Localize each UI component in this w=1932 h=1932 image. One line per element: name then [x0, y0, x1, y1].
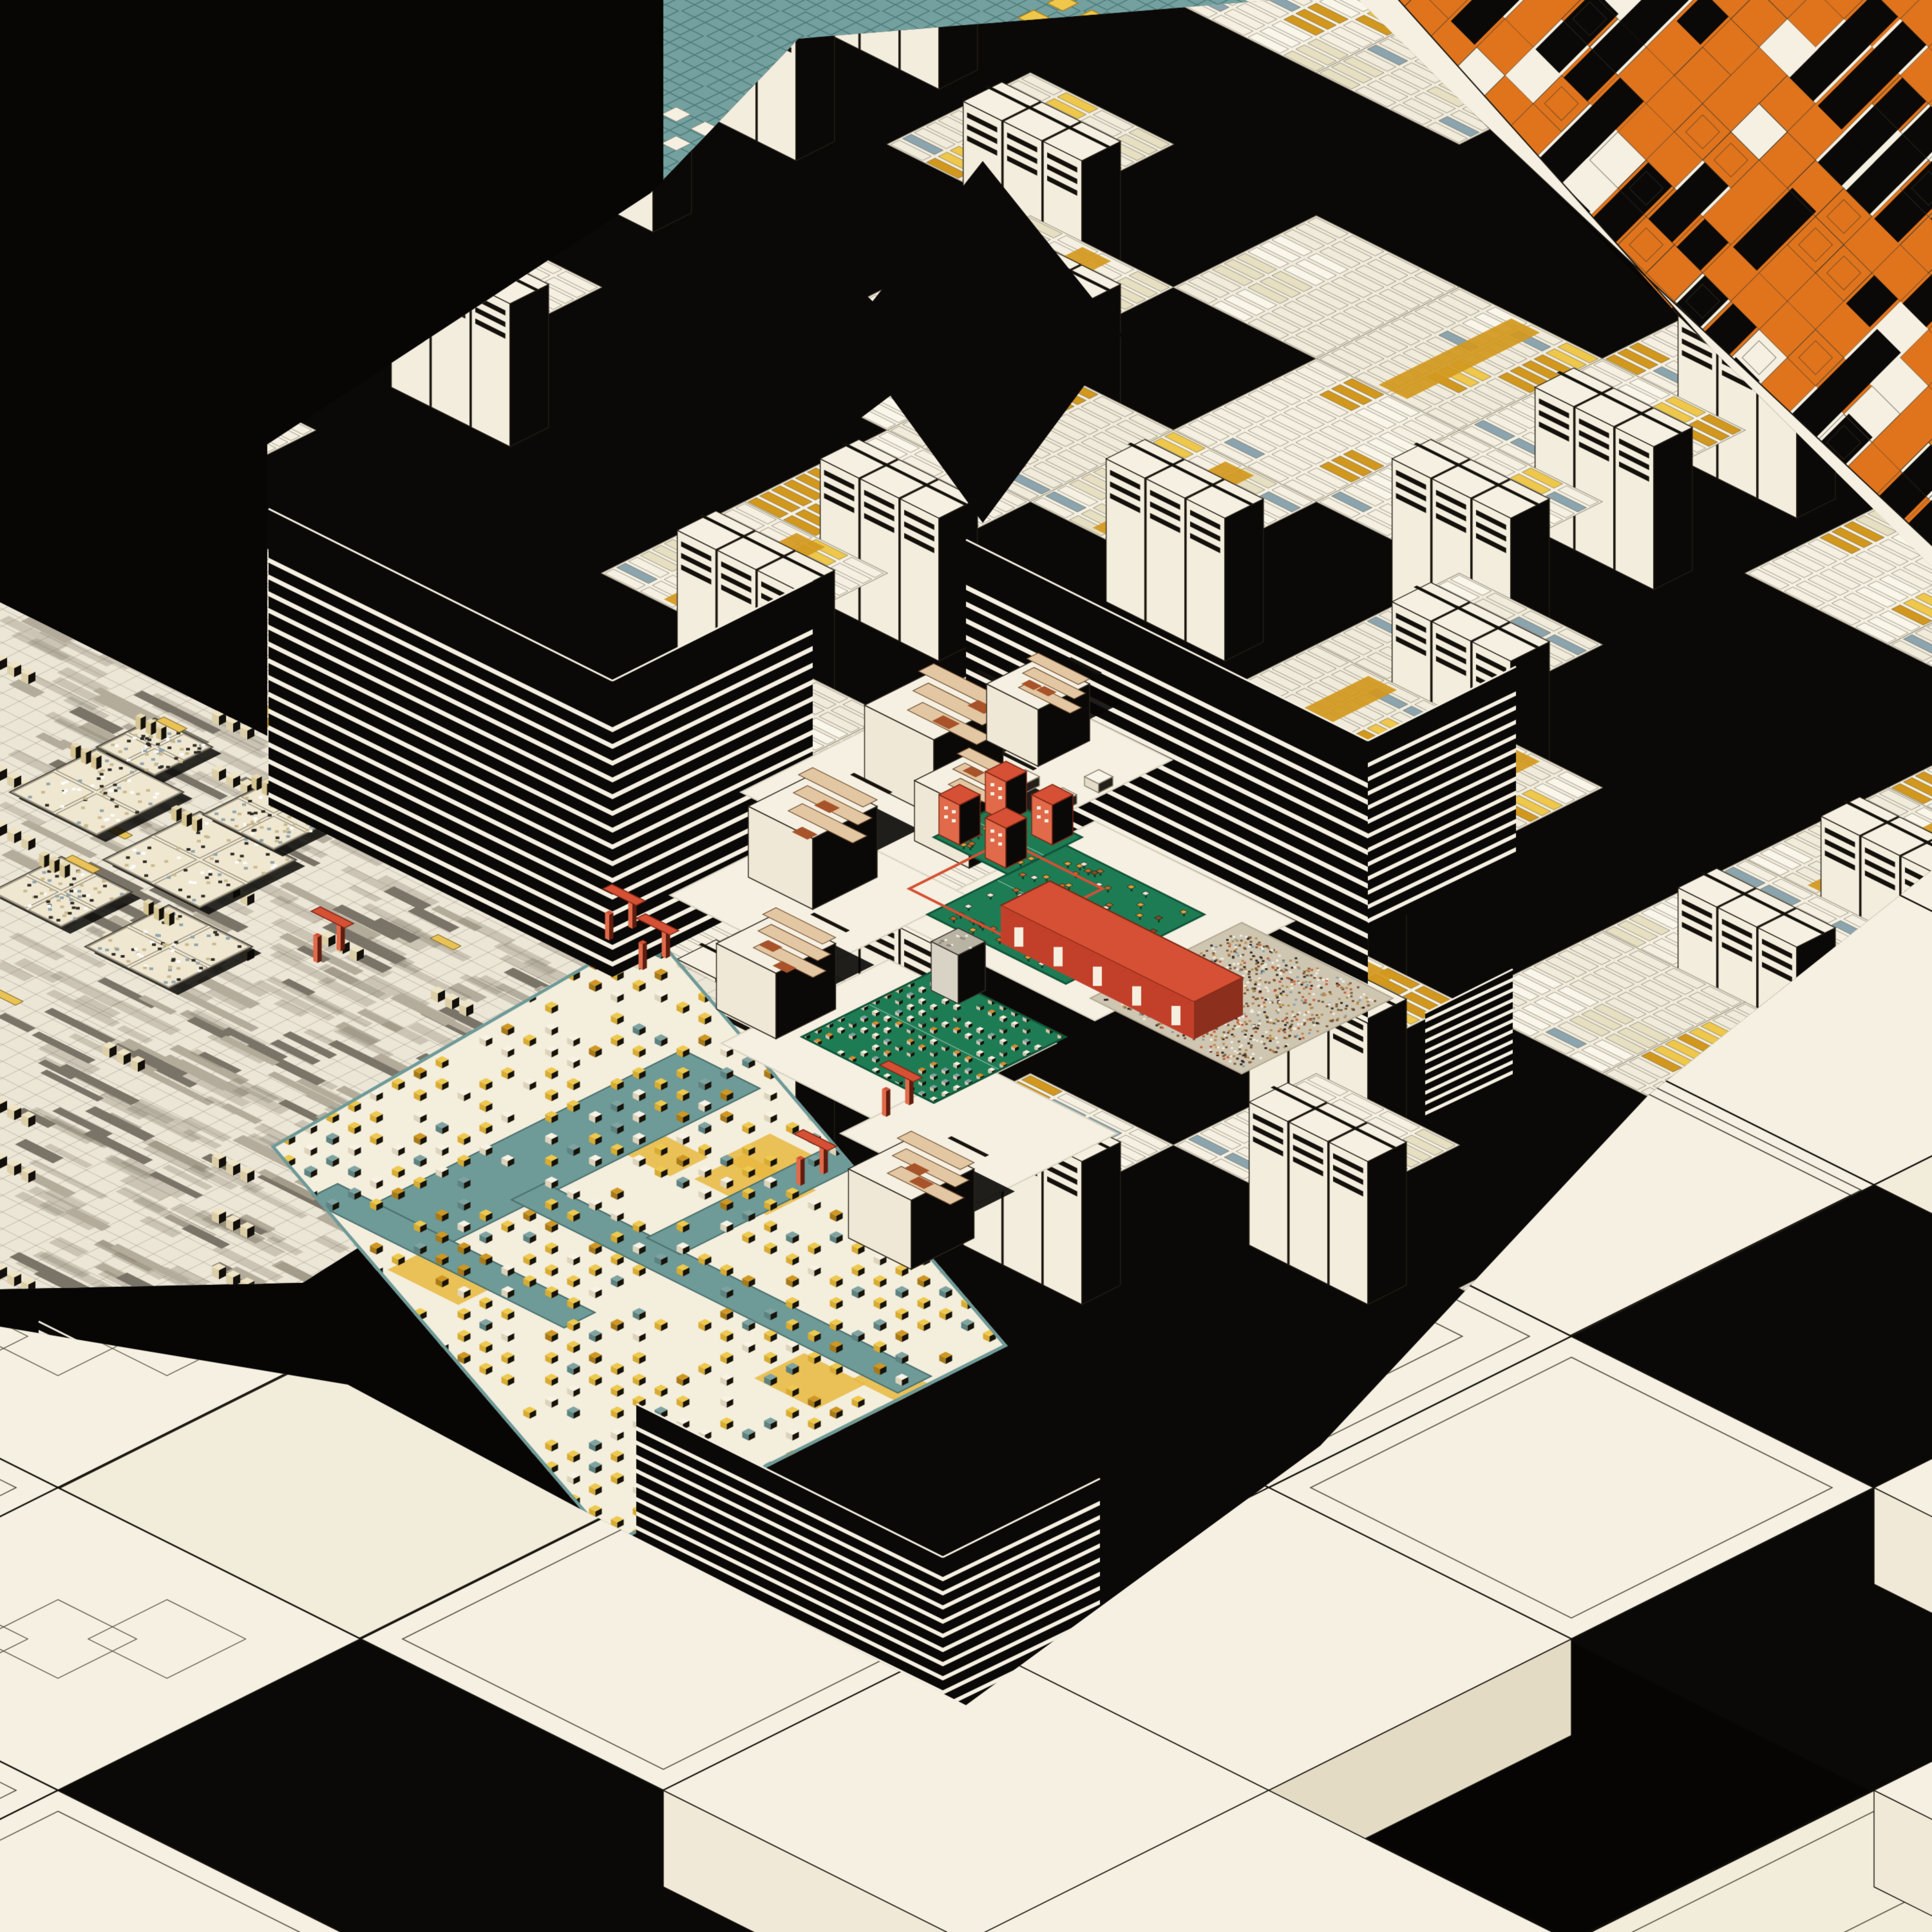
artwork-canvas [0, 0, 1932, 1932]
artwork-frame [0, 0, 1932, 1932]
